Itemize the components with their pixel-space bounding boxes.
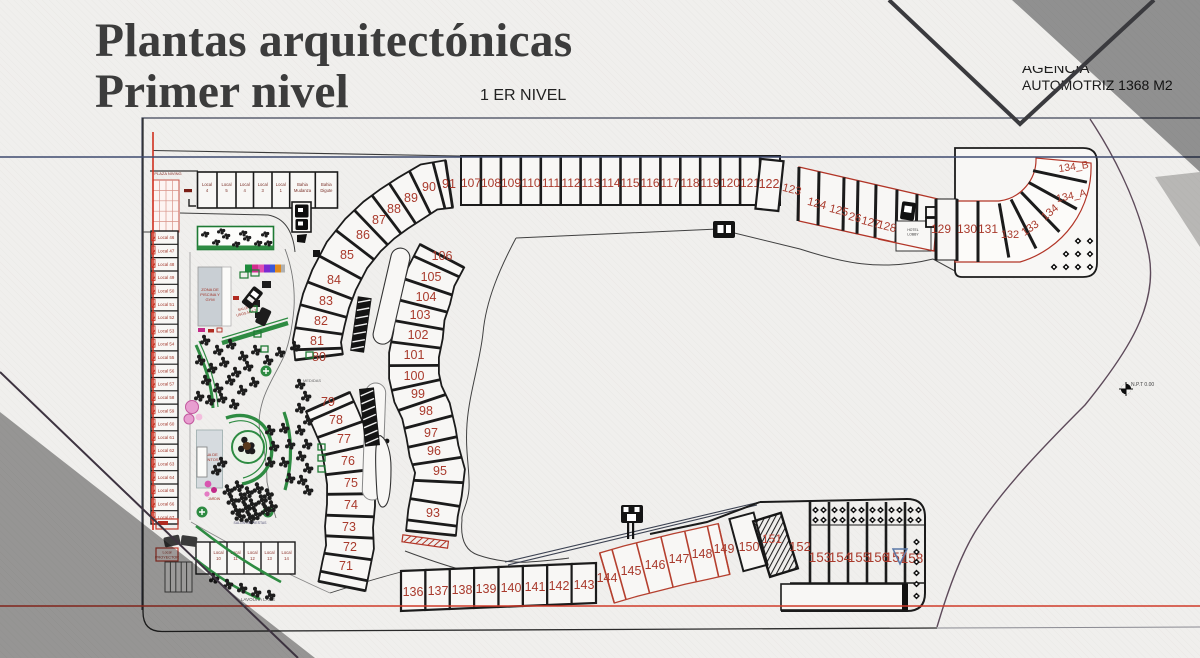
svg-text:80: 80	[312, 350, 326, 364]
svg-text:148: 148	[692, 547, 713, 561]
svg-text:119: 119	[700, 176, 719, 190]
svg-text:129: 129	[931, 222, 951, 236]
svg-text:147: 147	[669, 552, 690, 566]
svg-text:Local: Local	[247, 550, 257, 555]
svg-text:86: 86	[356, 228, 370, 242]
svg-text:84: 84	[327, 273, 341, 287]
svg-text:151: 151	[762, 532, 782, 546]
svg-text:Local 61: Local 61	[158, 435, 175, 440]
svg-text:Local 47: Local 47	[158, 249, 175, 254]
svg-text:109: 109	[501, 176, 521, 190]
svg-text:150: 150	[739, 540, 760, 554]
svg-text:82: 82	[314, 314, 328, 328]
svg-text:PLAZA NIVING: PLAZA NIVING	[154, 171, 181, 176]
svg-text:77: 77	[337, 432, 351, 446]
svg-text:GYM: GYM	[205, 297, 214, 302]
svg-text:93: 93	[426, 506, 440, 520]
svg-text:Local 53: Local 53	[158, 328, 175, 333]
svg-text:130: 130	[957, 222, 977, 236]
svg-text:Local 55: Local 55	[158, 355, 175, 360]
svg-text:149: 149	[714, 542, 735, 556]
svg-text:88: 88	[387, 202, 401, 216]
svg-text:Bahia: Bahia	[321, 182, 332, 187]
svg-text:76: 76	[341, 454, 355, 468]
svg-text:141: 141	[525, 580, 546, 594]
svg-text:100: 100	[404, 369, 425, 383]
svg-text:97: 97	[424, 426, 438, 440]
svg-text:138: 138	[452, 583, 473, 597]
svg-text:71: 71	[339, 559, 353, 573]
svg-text:14: 14	[284, 556, 289, 561]
svg-text:102: 102	[408, 328, 429, 342]
svg-text:Local 52: Local 52	[158, 315, 175, 320]
svg-text:Local 63: Local 63	[158, 462, 175, 467]
svg-text:Local 51: Local 51	[158, 302, 175, 307]
svg-text:90: 90	[422, 180, 436, 194]
svg-text:142: 142	[549, 579, 570, 593]
svg-text:111: 111	[542, 176, 561, 190]
svg-text:83: 83	[319, 294, 333, 308]
svg-text:Local 66: Local 66	[158, 502, 175, 507]
svg-text:110: 110	[521, 176, 540, 190]
svg-text:106: 106	[432, 249, 453, 263]
svg-text:85: 85	[340, 248, 354, 262]
svg-text:Local: Local	[202, 182, 212, 187]
svg-text:Plantas arquitectónicas: Plantas arquitectónicas	[95, 15, 572, 67]
svg-text:JARDIN: JARDIN	[208, 497, 221, 501]
svg-text:Local 49: Local 49	[158, 275, 175, 280]
svg-text:79: 79	[321, 395, 335, 409]
svg-text:Local: Local	[276, 182, 286, 187]
svg-text:73: 73	[342, 520, 356, 534]
svg-text:122: 122	[759, 177, 780, 191]
svg-text:Local: Local	[281, 550, 291, 555]
svg-text:72: 72	[343, 540, 357, 554]
svg-text:158: 158	[901, 551, 924, 566]
svg-text:12: 12	[250, 556, 255, 561]
svg-text:Local 65: Local 65	[158, 488, 175, 493]
svg-text:Local 50: Local 50	[158, 288, 175, 293]
svg-text:81: 81	[310, 334, 324, 348]
svg-text:104: 104	[416, 290, 437, 304]
svg-text:117: 117	[660, 176, 679, 190]
svg-text:95: 95	[433, 464, 447, 478]
svg-text:Local 56: Local 56	[158, 368, 175, 373]
svg-text:105: 105	[421, 270, 442, 284]
svg-text:Local 58: Local 58	[158, 395, 175, 400]
svg-text:Digute: Digute	[320, 188, 333, 193]
svg-text:Local 60: Local 60	[158, 422, 175, 427]
svg-text:145: 145	[621, 564, 642, 578]
svg-text:140: 140	[501, 581, 522, 595]
svg-text:LOBBY: LOBBY	[907, 233, 919, 237]
svg-text:136: 136	[403, 585, 424, 599]
svg-text:1 ER NIVEL: 1 ER NIVEL	[480, 87, 566, 104]
svg-text:87: 87	[372, 213, 386, 227]
svg-text:99: 99	[411, 387, 425, 401]
svg-text:Local: Local	[213, 550, 223, 555]
svg-text:114: 114	[601, 176, 620, 190]
svg-text:Local 48: Local 48	[158, 262, 175, 267]
svg-text:146: 146	[645, 558, 666, 572]
svg-text:98: 98	[419, 404, 433, 418]
svg-text:Bahia: Bahia	[297, 182, 308, 187]
svg-text:101: 101	[404, 348, 425, 362]
svg-text:152: 152	[789, 539, 811, 554]
svg-text:131: 131	[978, 222, 998, 236]
svg-text:Local 62: Local 62	[158, 448, 175, 453]
svg-text:74: 74	[344, 498, 358, 512]
svg-text:137: 137	[428, 584, 449, 598]
svg-text:75: 75	[344, 476, 358, 490]
svg-text:SALON DE FIESTAS: SALON DE FIESTAS	[234, 521, 268, 525]
svg-text:118: 118	[680, 176, 699, 190]
svg-text:78: 78	[329, 413, 343, 427]
svg-text:120: 120	[720, 176, 740, 190]
svg-text:10: 10	[216, 556, 221, 561]
svg-text:96: 96	[427, 444, 441, 458]
svg-text:139: 139	[476, 582, 497, 596]
svg-text:116: 116	[640, 176, 659, 190]
svg-text:MEDIDAS: MEDIDAS	[303, 378, 322, 383]
svg-text:112: 112	[561, 176, 580, 190]
svg-text:Local: Local	[264, 550, 274, 555]
svg-text:144: 144	[597, 571, 618, 585]
svg-text:89: 89	[404, 191, 418, 205]
svg-text:91: 91	[442, 177, 456, 191]
svg-text:Local 64: Local 64	[158, 475, 175, 480]
svg-text:Local 54: Local 54	[158, 342, 175, 347]
svg-text:132: 132	[1001, 229, 1019, 241]
svg-text:N.P.T 0.00: N.P.T 0.00	[1131, 382, 1154, 388]
svg-text:103: 103	[410, 308, 431, 322]
svg-text:108: 108	[481, 176, 501, 190]
svg-text:13: 13	[267, 556, 272, 561]
svg-text:Primer nivel: Primer nivel	[95, 66, 349, 118]
svg-text:HOTEL: HOTEL	[907, 228, 918, 232]
svg-text:113: 113	[581, 176, 600, 190]
svg-text:Local: Local	[221, 182, 231, 187]
svg-text:143: 143	[574, 578, 595, 592]
svg-text:Local 46: Local 46	[158, 235, 175, 240]
svg-text:Mudanza: Mudanza	[294, 188, 312, 193]
svg-text:Local 57: Local 57	[158, 382, 175, 387]
svg-text:115: 115	[620, 176, 639, 190]
svg-text:107: 107	[461, 176, 481, 190]
svg-text:Local: Local	[240, 182, 250, 187]
svg-text:Local 59: Local 59	[158, 408, 175, 413]
svg-text:Local: Local	[258, 182, 268, 187]
